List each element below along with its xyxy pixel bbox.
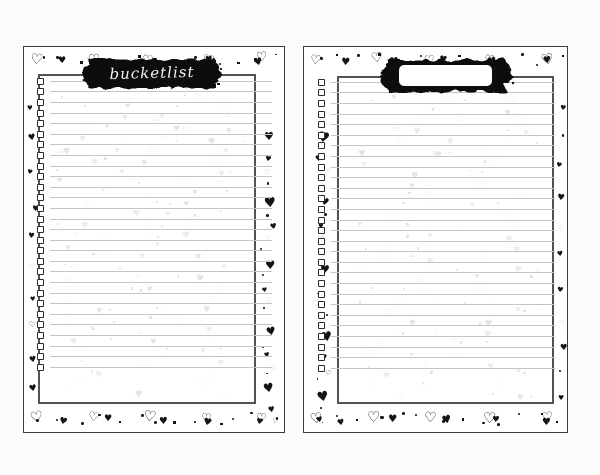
checkbox[interactable]	[318, 291, 325, 298]
writing-line	[331, 145, 555, 146]
dot-mark	[250, 412, 252, 414]
dot-mark	[154, 421, 157, 424]
checkbox[interactable]	[37, 173, 44, 180]
checklist-row	[37, 341, 276, 352]
writing-line	[331, 209, 555, 210]
checkbox[interactable]	[37, 194, 44, 201]
writing-line	[50, 282, 272, 283]
checkbox[interactable]	[318, 121, 325, 128]
writing-line	[331, 315, 555, 316]
checkbox[interactable]	[37, 216, 44, 223]
heart-outline-icon: ♡	[424, 411, 437, 426]
dot-mark	[81, 422, 84, 425]
checkbox[interactable]	[318, 89, 325, 96]
planner-page-left: ♡♡♡♡♡♥♥♥♥♥♡♡♡♡♡♥♥♥♥♥♥♥♥♥♥♡♥♡♥♥♥♥♡♥♥♡♥♥♡♥…	[23, 46, 285, 433]
writing-line	[331, 114, 555, 115]
dot-mark	[378, 53, 381, 56]
heart-filled-icon: ♥	[58, 416, 68, 427]
checklist-row	[37, 309, 276, 320]
heart-filled-icon: ♥	[341, 57, 351, 68]
dot-mark	[536, 64, 538, 66]
writing-line	[331, 156, 555, 157]
writing-line	[50, 367, 272, 368]
dot-mark	[320, 57, 323, 60]
checklist-row	[318, 247, 559, 258]
checkbox[interactable]	[318, 322, 325, 329]
writing-line	[331, 304, 555, 305]
heart-filled-icon: ♥	[560, 344, 567, 353]
writing-line	[50, 123, 272, 124]
dot-mark	[36, 419, 39, 422]
heart-filled-icon: ♥	[543, 56, 552, 66]
dot-mark	[266, 373, 268, 375]
checkbox[interactable]	[318, 164, 325, 171]
checklist-row	[37, 161, 276, 172]
writing-line	[50, 271, 272, 272]
checkbox[interactable]	[318, 365, 325, 372]
dot-mark	[173, 421, 176, 424]
blank-title-text	[402, 69, 492, 87]
checklist-row	[318, 268, 559, 279]
checklist-row	[37, 150, 276, 161]
checklist-row	[318, 310, 559, 321]
dot-mark	[194, 421, 196, 423]
checkbox[interactable]	[318, 185, 325, 192]
dot-mark	[541, 413, 543, 415]
heart-filled-icon: ♥	[29, 296, 35, 303]
checklist-row	[37, 256, 276, 267]
checklist-row	[318, 141, 559, 152]
heart-filled-icon: ♥	[336, 418, 345, 427]
checkbox[interactable]	[318, 217, 325, 224]
checkbox[interactable]	[37, 237, 44, 244]
checkbox[interactable]	[318, 100, 325, 107]
checklist-row	[37, 118, 276, 129]
checkbox[interactable]	[37, 353, 44, 360]
checkbox[interactable]	[318, 206, 325, 213]
checkbox[interactable]	[37, 78, 44, 85]
writing-line	[50, 261, 272, 262]
writing-line	[331, 198, 555, 199]
checklist-row	[318, 331, 559, 342]
checklist-row	[37, 224, 276, 235]
heart-filled-icon: ♥	[560, 105, 567, 112]
checkbox[interactable]	[318, 195, 325, 202]
checklist-row	[318, 257, 559, 268]
checklist-row	[37, 97, 276, 108]
checkbox[interactable]	[37, 268, 44, 275]
checkbox[interactable]	[318, 132, 325, 139]
writing-line	[50, 176, 272, 177]
writing-line	[50, 155, 272, 156]
writing-line	[50, 250, 272, 251]
heart-filled-icon: ♥	[388, 414, 398, 425]
writing-line	[331, 241, 555, 242]
heart-outline-icon: ♡	[310, 53, 323, 67]
writing-line	[50, 208, 272, 209]
checklist-row	[318, 172, 559, 183]
checkbox[interactable]	[318, 142, 325, 149]
title-banner-right	[378, 57, 518, 99]
checkbox[interactable]	[37, 343, 44, 350]
dot-mark	[220, 423, 222, 425]
writing-line	[50, 219, 272, 220]
dot-mark	[320, 407, 322, 409]
checkbox[interactable]	[37, 258, 44, 265]
dot-mark	[462, 418, 465, 421]
checklist-row	[318, 225, 559, 236]
writing-line	[50, 144, 272, 145]
checklist-row	[37, 246, 276, 257]
writing-line	[50, 113, 272, 114]
dot-mark	[43, 56, 46, 59]
heart-outline-icon: ♡	[30, 52, 45, 68]
checklist-row	[318, 215, 559, 226]
writing-line	[50, 102, 272, 103]
checklist-row	[318, 342, 559, 353]
heart-filled-icon: ♥	[58, 56, 66, 65]
writing-line	[331, 368, 555, 369]
dot-mark	[356, 419, 358, 421]
checkbox[interactable]	[318, 280, 325, 287]
heart-outline-icon: ♡	[366, 411, 380, 426]
checklist-row	[318, 289, 559, 300]
checklist-row	[37, 298, 276, 309]
checklist-row	[318, 183, 559, 194]
heart-outline-icon: ♡	[560, 320, 566, 327]
dot-mark	[336, 415, 338, 417]
checklist-row	[37, 267, 276, 278]
heart-filled-icon: ♥	[159, 417, 168, 427]
checkbox[interactable]	[37, 321, 44, 328]
checklist-row	[318, 236, 559, 247]
writing-line	[331, 220, 555, 221]
dot-mark	[357, 54, 359, 56]
checkbox[interactable]	[37, 99, 44, 106]
writing-line	[50, 229, 272, 230]
checkbox[interactable]	[318, 248, 325, 255]
checklist-row	[318, 109, 559, 120]
writing-line	[331, 347, 555, 348]
writing-line	[331, 124, 555, 125]
writing-line	[331, 135, 555, 136]
dot-mark	[415, 414, 418, 417]
writing-line	[331, 272, 555, 273]
writing-line	[331, 167, 555, 168]
heart-filled-icon: ♥	[262, 381, 275, 395]
heart-filled-icon: ♥	[255, 416, 264, 425]
writing-line	[331, 357, 555, 358]
writing-line	[331, 325, 555, 326]
dot-mark	[556, 421, 559, 424]
checklist-row	[37, 330, 276, 341]
dot-mark	[317, 378, 319, 380]
checkbox[interactable]	[318, 333, 325, 340]
checklist-row	[318, 204, 559, 215]
checkbox[interactable]	[37, 279, 44, 286]
writing-line	[331, 294, 555, 295]
heart-outline-icon: ♡	[29, 409, 45, 426]
heart-filled-icon: ♥	[26, 169, 33, 176]
planner-spread: ♡♡♡♡♡♥♥♥♥♥♡♡♡♡♡♥♥♥♥♥♥♥♥♥♥♡♥♡♥♥♥♥♡♥♥♡♥♥♡♥…	[0, 0, 600, 475]
checklist-row	[37, 320, 276, 331]
heart-filled-icon: ♥	[558, 395, 564, 402]
dot-mark	[56, 419, 58, 421]
dot-mark	[518, 413, 521, 416]
writing-line	[331, 283, 555, 284]
heart-outline-icon: ♡	[316, 430, 324, 432]
checkbox[interactable]	[318, 79, 325, 86]
dot-mark	[254, 58, 257, 61]
writing-line	[50, 240, 272, 241]
checkbox[interactable]	[37, 226, 44, 233]
heart-filled-icon: ♥	[28, 232, 36, 240]
heart-filled-icon: ♥	[28, 355, 37, 365]
dot-mark	[521, 53, 524, 56]
dot-mark	[98, 414, 100, 416]
writing-line	[331, 188, 555, 189]
checkbox[interactable]	[37, 364, 44, 371]
dot-mark	[275, 54, 277, 56]
checkbox[interactable]	[318, 238, 325, 245]
checklist-row	[318, 151, 559, 162]
checkbox[interactable]	[318, 301, 325, 308]
checklist-row	[318, 130, 559, 141]
dot-mark	[497, 423, 500, 426]
heart-filled-icon: ♥	[27, 105, 33, 112]
heart-filled-icon: ♥	[28, 134, 37, 144]
checklist-row	[37, 129, 276, 140]
heart-filled-icon: ♥	[268, 405, 276, 414]
checkbox[interactable]	[318, 269, 325, 276]
checkbox[interactable]	[318, 174, 325, 181]
checklist-row	[37, 277, 276, 288]
heart-filled-icon: ♥	[29, 385, 38, 395]
checkbox[interactable]	[37, 110, 44, 117]
heart-outline-icon: ♡	[29, 263, 37, 271]
heart-outline-icon: ♡	[87, 411, 100, 425]
heart-filled-icon: ♥	[316, 390, 330, 406]
heart-outline-icon: ♡	[271, 417, 279, 425]
heart-filled-icon: ♥	[202, 417, 213, 428]
checklist-row	[37, 140, 276, 151]
checklist-row	[37, 351, 276, 362]
checklist-row	[318, 119, 559, 130]
checkbox[interactable]	[37, 88, 44, 95]
checkbox[interactable]	[37, 290, 44, 297]
checklist-row	[318, 299, 559, 310]
checkbox[interactable]	[37, 311, 44, 318]
dot-mark	[56, 56, 59, 59]
planner-page-right: ♡♡♡♡♡♥♥♥♥♥♡♡♡♡♡♥♥♥♥♥♥♥♡♥♥♡♥♥♡♥♥♡♥♥♡♥♥♥♡♥…	[303, 46, 568, 433]
dot-mark	[237, 62, 239, 64]
dot-mark	[559, 370, 561, 372]
checklist-row	[318, 321, 559, 332]
writing-line	[50, 346, 272, 347]
checklist-row	[318, 98, 559, 109]
checkbox[interactable]	[318, 344, 325, 351]
checklist-row	[318, 162, 559, 173]
checkbox[interactable]	[37, 300, 44, 307]
checkbox[interactable]	[318, 354, 325, 361]
writing-line	[50, 166, 272, 167]
writing-line	[50, 197, 272, 198]
checklist-row	[37, 288, 276, 299]
checkbox[interactable]	[318, 111, 325, 118]
checklist-row	[318, 194, 559, 205]
checkbox[interactable]	[37, 131, 44, 138]
checkbox[interactable]	[318, 312, 325, 319]
heart-outline-icon: ♡	[28, 320, 35, 328]
checkbox[interactable]	[37, 205, 44, 212]
checkbox[interactable]	[37, 332, 44, 339]
writing-line	[50, 187, 272, 188]
writing-line	[331, 251, 555, 252]
checklist-row	[318, 278, 559, 289]
heart-filled-icon: ♥	[542, 418, 551, 428]
checklist-right	[318, 77, 559, 374]
writing-line	[50, 324, 272, 325]
checkbox[interactable]	[318, 153, 325, 160]
writing-line	[50, 314, 272, 315]
checklist-row	[37, 171, 276, 182]
checklist-row	[37, 203, 276, 214]
checklist-row	[37, 193, 276, 204]
writing-line	[331, 336, 555, 337]
checklist-row	[37, 108, 276, 119]
dot-mark	[402, 412, 405, 415]
dot-mark	[380, 416, 383, 419]
writing-line	[50, 335, 272, 336]
dot-mark	[119, 421, 121, 423]
checkbox[interactable]	[318, 227, 325, 234]
checkbox[interactable]	[37, 152, 44, 159]
writing-line	[331, 177, 555, 178]
checklist-row	[318, 352, 559, 363]
dot-mark	[336, 54, 338, 56]
dot-mark	[232, 418, 234, 420]
page-title: bucketlist	[80, 62, 224, 84]
writing-line	[331, 262, 555, 263]
writing-line	[331, 230, 555, 231]
checkbox[interactable]	[37, 247, 44, 254]
checklist-row	[37, 214, 276, 225]
writing-line	[50, 303, 272, 304]
writing-line	[331, 103, 555, 104]
dot-mark	[562, 134, 564, 136]
checkbox[interactable]	[37, 163, 44, 170]
writing-line	[50, 356, 272, 357]
checklist-left	[37, 76, 276, 373]
heart-filled-icon: ♥	[315, 415, 323, 424]
dot-mark	[562, 55, 564, 57]
checklist-row	[37, 235, 276, 246]
checkbox[interactable]	[37, 141, 44, 148]
checkbox[interactable]	[37, 184, 44, 191]
heart-filled-icon: ♥	[104, 415, 112, 424]
title-banner-left: bucketlist	[80, 56, 224, 96]
checkbox[interactable]	[318, 259, 325, 266]
dot-mark	[442, 420, 445, 423]
checklist-row	[37, 362, 276, 373]
checkbox[interactable]	[37, 120, 44, 127]
writing-line	[50, 293, 272, 294]
checklist-row	[318, 363, 559, 374]
writing-line	[50, 134, 272, 135]
checklist-row	[37, 182, 276, 193]
